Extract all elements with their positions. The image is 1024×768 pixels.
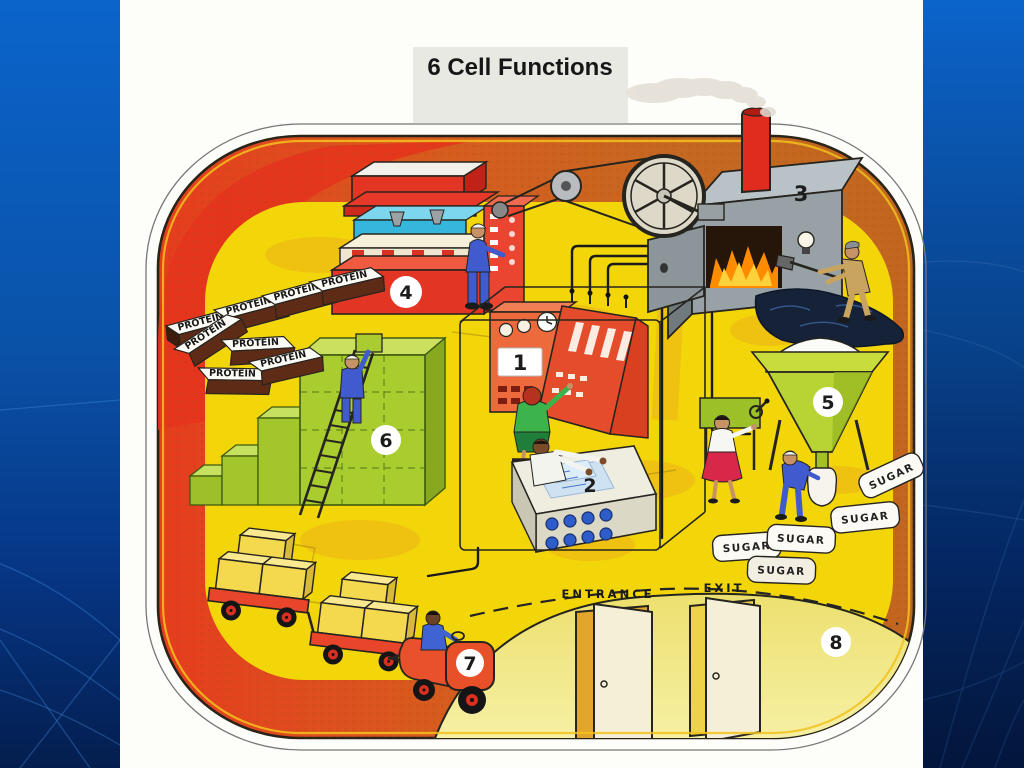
number-6: 6 — [379, 430, 392, 452]
number-4: 4 — [399, 282, 412, 304]
sugar-label: SUGAR — [757, 564, 806, 578]
number-8: 8 — [829, 632, 842, 654]
station-4-badge: 4 — [390, 276, 422, 308]
machine-pulley-wheel — [492, 202, 508, 218]
station-7-badge: 7 — [456, 649, 484, 677]
exit-door: EXIT — [690, 581, 760, 742]
sugar-label: SUGAR — [777, 533, 826, 548]
console-clock — [538, 313, 557, 332]
number-2: 2 — [583, 475, 596, 497]
station-5-badge: 5 — [813, 387, 843, 417]
entrance-door-panel — [594, 604, 652, 750]
exit-label: EXIT — [704, 581, 745, 595]
open-fire-door — [648, 226, 704, 312]
entrance-door: ENTRANCE — [562, 587, 655, 750]
number-3: 3 — [794, 182, 809, 206]
entrance-label: ENTRANCE — [562, 587, 655, 601]
hopper-rim — [752, 352, 888, 372]
sugar-bag: SUGAR — [747, 556, 816, 584]
tractor-wheel — [413, 679, 435, 701]
background-right-shade — [918, 0, 1024, 768]
page-title: 6 Cell Functions — [427, 54, 612, 81]
station-8-badge: 8 — [821, 627, 851, 657]
tractor-wheel — [458, 686, 486, 714]
number-5: 5 — [821, 392, 834, 414]
sugar-bag: SUGAR — [767, 524, 836, 554]
number-1: 1 — [513, 351, 528, 375]
station-6-badge: 6 — [371, 425, 401, 455]
slide-illustration: 6 Cell Functions ENTRANCE — [0, 0, 1024, 768]
protein-label: PROTEIN — [209, 368, 256, 380]
title-block: 6 Cell Functions — [413, 47, 628, 123]
presentation-slide: 6 Cell Functions ENTRANCE — [0, 0, 1024, 768]
number-7: 7 — [463, 653, 476, 675]
exit-door-panel — [706, 598, 760, 742]
chimney — [742, 110, 770, 192]
